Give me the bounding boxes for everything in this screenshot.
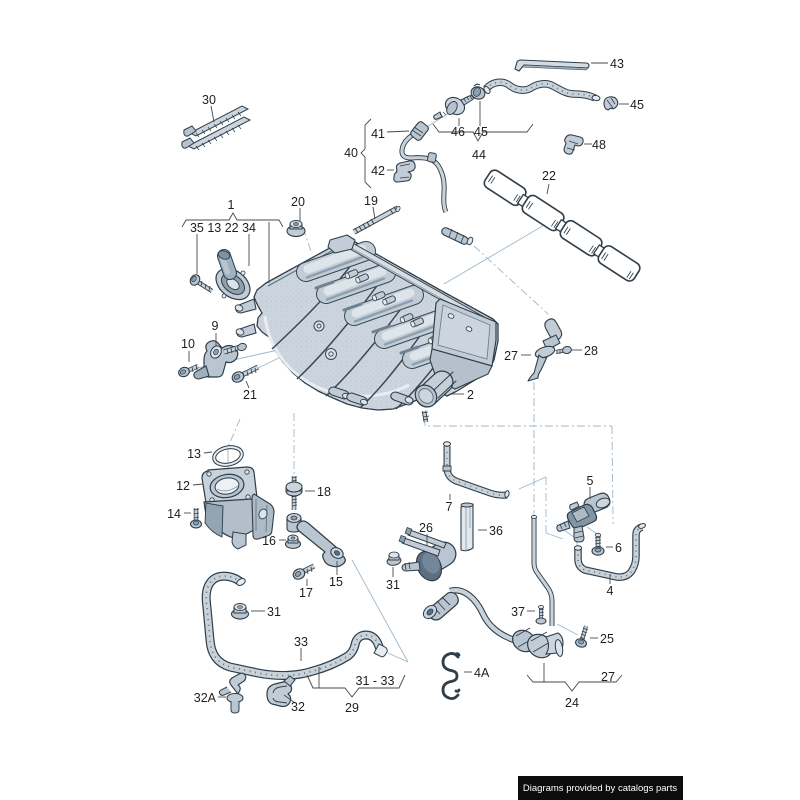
svg-text:2: 2: [467, 388, 474, 402]
svg-text:42: 42: [371, 164, 385, 178]
svg-text:4: 4: [607, 584, 614, 598]
svg-text:33: 33: [294, 635, 308, 649]
svg-text:40: 40: [344, 146, 358, 160]
svg-text:21: 21: [243, 388, 257, 402]
svg-text:31: 31: [267, 605, 281, 619]
svg-text:12: 12: [176, 479, 190, 493]
svg-text:31: 31: [386, 578, 400, 592]
svg-text:45: 45: [474, 125, 488, 139]
svg-text:28: 28: [584, 344, 598, 358]
svg-text:48: 48: [592, 138, 606, 152]
svg-text:37: 37: [511, 605, 525, 619]
svg-text:30: 30: [202, 93, 216, 107]
svg-text:4A: 4A: [474, 666, 490, 680]
svg-text:44: 44: [472, 148, 486, 162]
svg-text:Diagrams provided by catalogs: Diagrams provided by catalogs parts: [523, 783, 677, 794]
svg-text:41: 41: [371, 127, 385, 141]
svg-text:43: 43: [610, 57, 624, 71]
svg-text:46: 46: [451, 125, 465, 139]
svg-text:9: 9: [212, 319, 219, 333]
svg-text:27: 27: [601, 670, 615, 684]
svg-text:13: 13: [187, 447, 201, 461]
svg-text:6: 6: [615, 541, 622, 555]
svg-text:45: 45: [630, 98, 644, 112]
svg-text:25: 25: [600, 632, 614, 646]
svg-text:7: 7: [446, 500, 453, 514]
svg-text:29: 29: [345, 701, 359, 715]
svg-text:19: 19: [364, 194, 378, 208]
svg-text:1: 1: [228, 198, 235, 212]
svg-text:22: 22: [542, 169, 556, 183]
svg-text:20: 20: [291, 195, 305, 209]
svg-text:18: 18: [317, 485, 331, 499]
svg-text:26: 26: [419, 521, 433, 535]
svg-text:17: 17: [299, 586, 313, 600]
svg-text:32: 32: [291, 700, 305, 714]
svg-text:14: 14: [167, 507, 181, 521]
svg-text:32A: 32A: [194, 691, 217, 705]
svg-text:5: 5: [587, 474, 594, 488]
svg-text:15: 15: [329, 575, 343, 589]
svg-text:36: 36: [489, 524, 503, 538]
svg-text:24: 24: [565, 696, 579, 710]
svg-text:31 - 33: 31 - 33: [356, 674, 395, 688]
svg-text:27: 27: [504, 349, 518, 363]
svg-text:35 13 22 34: 35 13 22 34: [190, 221, 256, 235]
svg-text:10: 10: [181, 337, 195, 351]
svg-text:16: 16: [262, 534, 276, 548]
